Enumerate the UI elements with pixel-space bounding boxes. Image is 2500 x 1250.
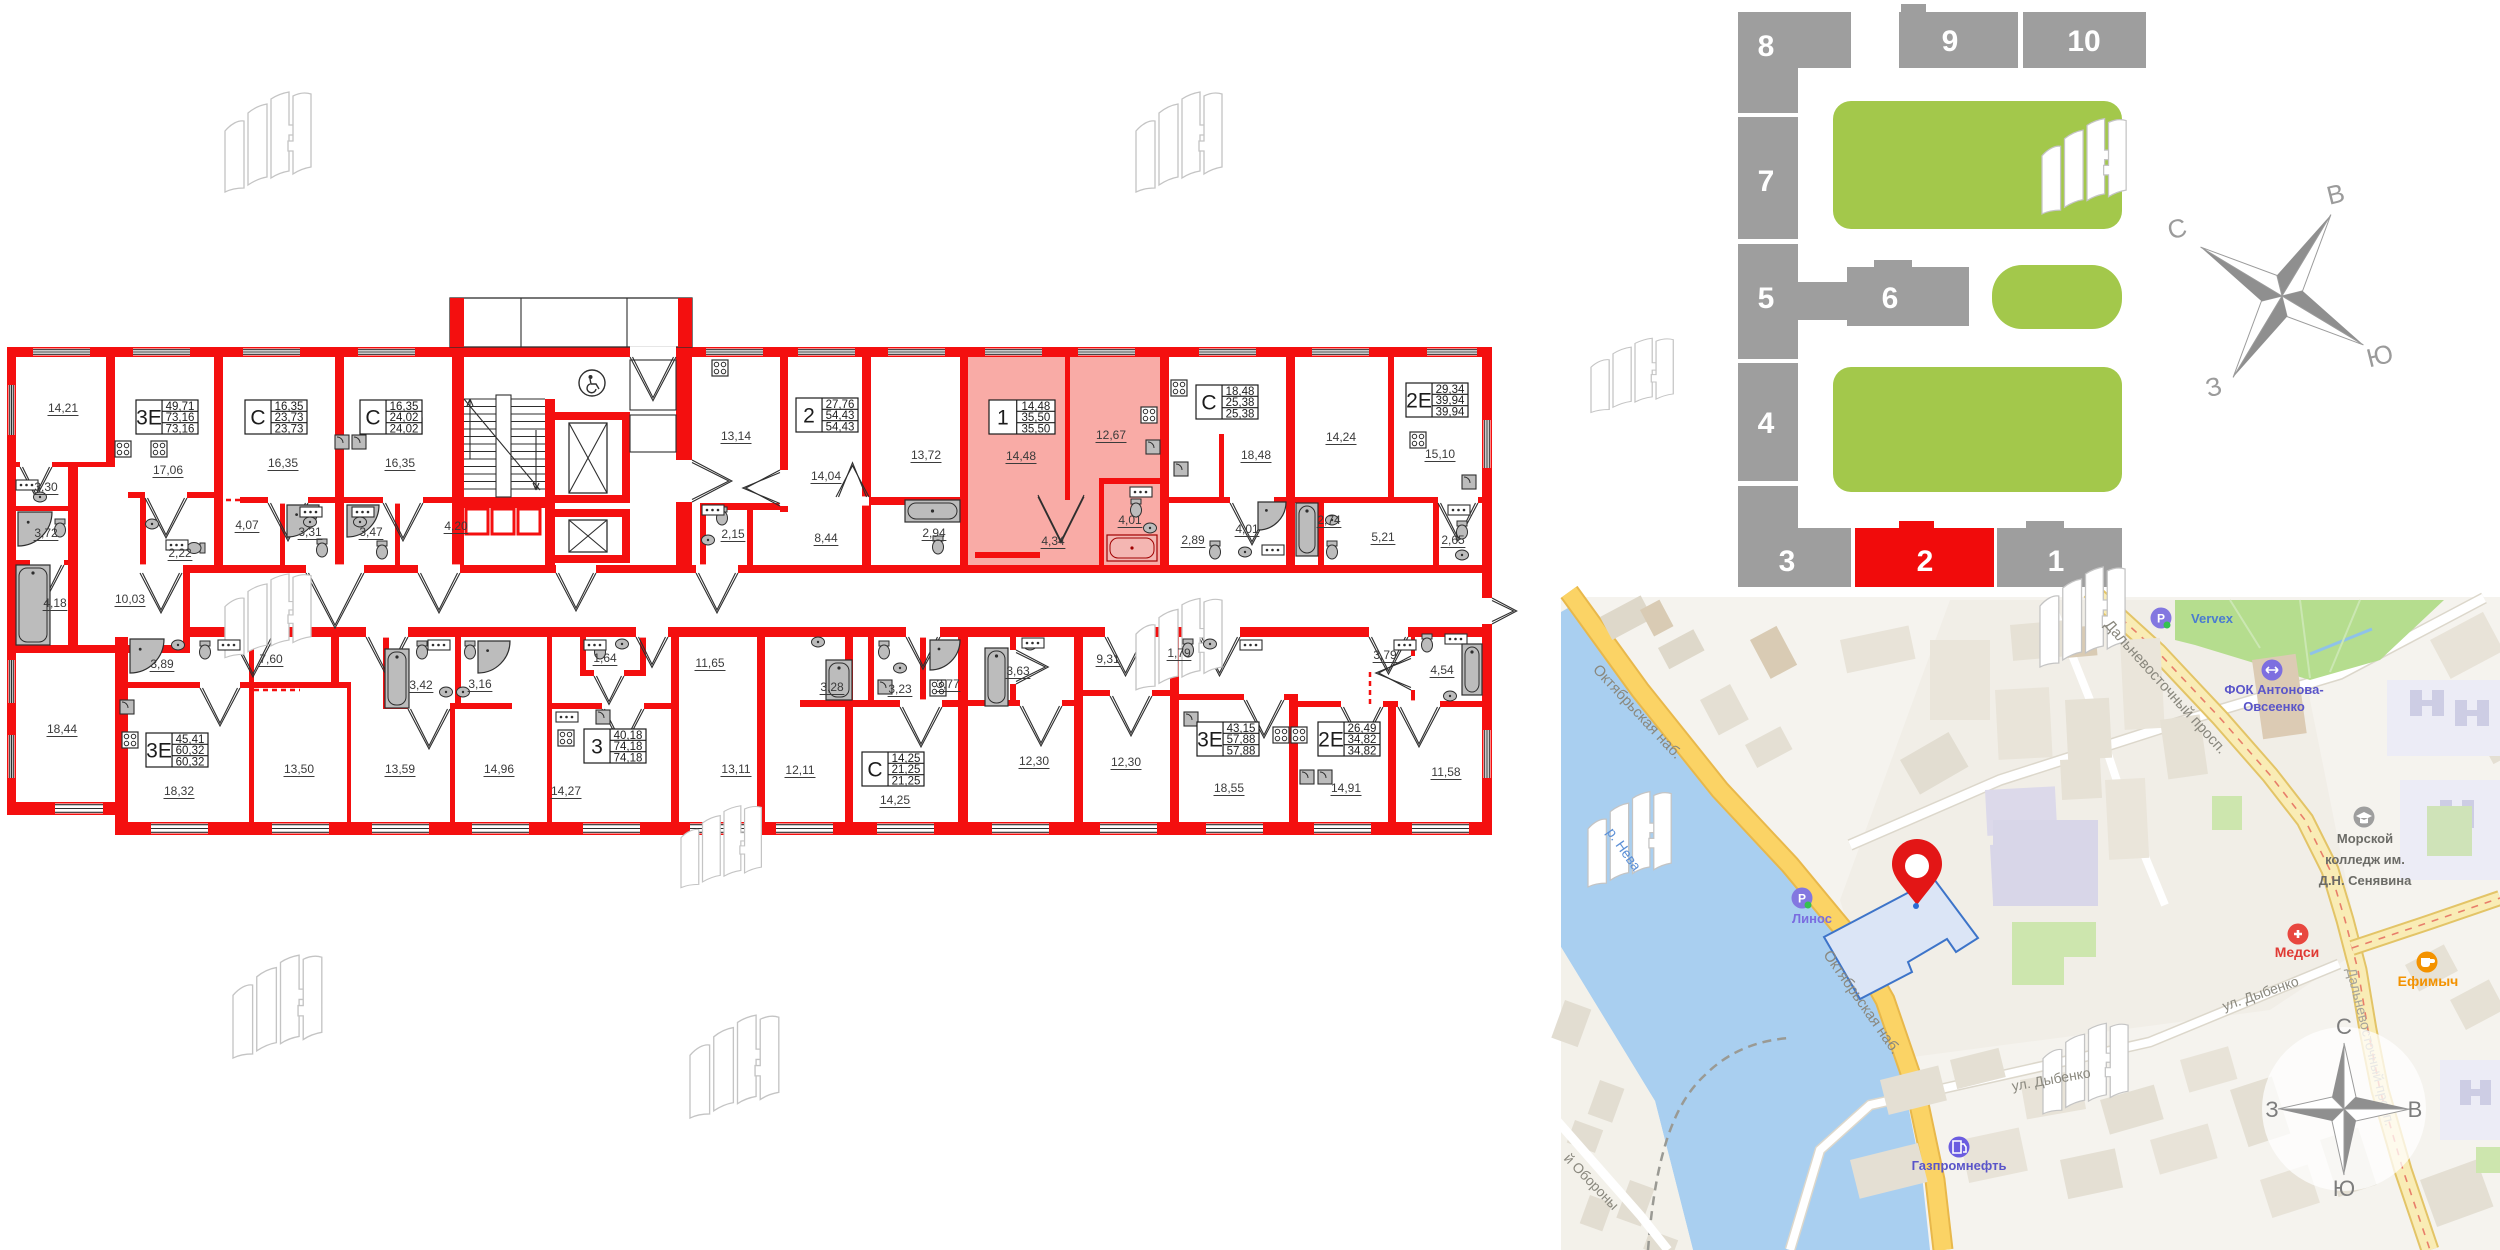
svg-text:16,35: 16,35	[275, 401, 304, 413]
svg-text:11,58: 11,58	[1431, 765, 1460, 779]
svg-text:18,48: 18,48	[1241, 448, 1271, 462]
svg-text:14,25: 14,25	[892, 753, 921, 765]
svg-text:26,49: 26,49	[1348, 723, 1377, 735]
svg-text:P: P	[1798, 892, 1806, 906]
svg-text:12,67: 12,67	[1096, 428, 1126, 442]
svg-text:2Е: 2Е	[1318, 729, 1344, 752]
svg-text:24,02: 24,02	[390, 423, 419, 435]
svg-text:2Е: 2Е	[1406, 390, 1432, 413]
svg-text:14,25: 14,25	[880, 793, 910, 807]
svg-text:Ефимыч: Ефимыч	[2398, 973, 2459, 989]
svg-text:3,23: 3,23	[888, 682, 912, 696]
svg-text:73,16: 73,16	[166, 423, 195, 435]
svg-text:13,72: 13,72	[911, 448, 941, 462]
svg-text:2,89: 2,89	[1181, 533, 1205, 547]
svg-text:14,96: 14,96	[484, 762, 514, 776]
svg-text:8,44: 8,44	[814, 531, 838, 545]
svg-text:35,50: 35,50	[1021, 423, 1050, 435]
svg-text:В: В	[2408, 1097, 2423, 1122]
svg-text:18,55: 18,55	[1214, 781, 1244, 795]
svg-text:14,27: 14,27	[551, 784, 581, 798]
svg-text:39,94: 39,94	[1436, 395, 1465, 407]
svg-text:5,21: 5,21	[1371, 530, 1395, 544]
svg-text:13,50: 13,50	[284, 762, 314, 776]
svg-text:17,06: 17,06	[153, 463, 183, 477]
svg-text:23,73: 23,73	[275, 423, 304, 435]
svg-text:35,50: 35,50	[1021, 412, 1050, 424]
svg-text:6: 6	[1882, 282, 1899, 315]
svg-text:15,10: 15,10	[1425, 447, 1455, 461]
svg-text:12,11: 12,11	[785, 763, 814, 777]
svg-text:2: 2	[803, 405, 815, 428]
svg-text:2,74: 2,74	[1317, 513, 1341, 527]
svg-text:74,18: 74,18	[614, 752, 643, 764]
svg-text:С: С	[365, 407, 380, 430]
svg-text:2,15: 2,15	[721, 527, 745, 541]
svg-text:7,60: 7,60	[259, 652, 283, 666]
svg-text:27,76: 27,76	[826, 399, 855, 411]
svg-text:4,01: 4,01	[1118, 513, 1142, 527]
svg-text:49,71: 49,71	[166, 401, 195, 413]
svg-text:10: 10	[2067, 25, 2100, 58]
svg-text:Линос: Линос	[1792, 911, 1832, 926]
svg-text:39,94: 39,94	[1436, 406, 1465, 418]
svg-text:колледж им.: колледж им.	[2325, 852, 2405, 867]
svg-text:Газпромнефть: Газпромнефть	[1912, 1158, 2007, 1173]
svg-text:16,35: 16,35	[390, 401, 419, 413]
svg-text:7: 7	[1758, 165, 1775, 198]
svg-text:3,31: 3,31	[298, 525, 322, 539]
svg-text:3,28: 3,28	[820, 680, 844, 694]
svg-text:18,32: 18,32	[164, 784, 194, 798]
svg-text:3,16: 3,16	[468, 677, 492, 691]
svg-text:3Е: 3Е	[1197, 729, 1223, 752]
svg-text:34,82: 34,82	[1348, 745, 1377, 757]
svg-text:9,31: 9,31	[1096, 652, 1120, 666]
svg-text:4,34: 4,34	[1041, 534, 1065, 548]
svg-text:3,63: 3,63	[1006, 664, 1030, 678]
svg-text:14,48: 14,48	[1006, 449, 1036, 463]
svg-text:4,54: 4,54	[1430, 663, 1454, 677]
svg-text:4,07: 4,07	[235, 518, 259, 532]
svg-text:Медси: Медси	[2275, 944, 2320, 960]
svg-text:54,43: 54,43	[826, 410, 855, 422]
svg-text:45,41: 45,41	[176, 734, 205, 746]
svg-text:Ю: Ю	[2333, 1176, 2355, 1201]
svg-text:4,01: 4,01	[1235, 522, 1259, 536]
svg-text:3,42: 3,42	[409, 678, 433, 692]
svg-text:57,88: 57,88	[1227, 745, 1256, 757]
svg-text:25,38: 25,38	[1226, 408, 1255, 420]
svg-text:29,34: 29,34	[1436, 384, 1465, 396]
svg-text:2,65: 2,65	[1441, 533, 1465, 547]
svg-text:21,25: 21,25	[892, 764, 921, 776]
svg-text:1,79: 1,79	[1167, 646, 1191, 660]
svg-text:3,89: 3,89	[150, 657, 174, 671]
svg-text:14,24: 14,24	[1326, 430, 1356, 444]
svg-text:Д.Н. Сенявина: Д.Н. Сенявина	[2319, 873, 2412, 888]
svg-text:С: С	[250, 407, 265, 430]
svg-text:60,32: 60,32	[176, 756, 205, 768]
svg-text:3,47: 3,47	[359, 525, 383, 539]
svg-text:3: 3	[1779, 545, 1796, 578]
svg-text:2,22: 2,22	[168, 546, 192, 560]
svg-text:14,21: 14,21	[48, 401, 78, 415]
svg-text:9: 9	[1942, 25, 1959, 58]
svg-text:5: 5	[1758, 282, 1775, 315]
svg-text:16,35: 16,35	[385, 456, 415, 470]
svg-text:3Е: 3Е	[146, 740, 172, 763]
svg-text:24,02: 24,02	[390, 412, 419, 424]
svg-text:4: 4	[1758, 407, 1775, 440]
svg-text:3: 3	[591, 736, 603, 759]
svg-text:3Е: 3Е	[136, 407, 162, 430]
svg-text:8: 8	[1758, 30, 1775, 63]
svg-text:P: P	[2157, 612, 2165, 626]
svg-text:ФОК Антонова-: ФОК Антонова-	[2224, 682, 2323, 697]
svg-text:13,14: 13,14	[721, 429, 751, 443]
svg-text:С: С	[1201, 392, 1216, 415]
svg-text:3,77: 3,77	[936, 677, 960, 691]
svg-text:18,48: 18,48	[1226, 386, 1255, 398]
svg-text:4,18: 4,18	[43, 596, 67, 610]
svg-text:16,35: 16,35	[268, 456, 298, 470]
svg-text:2: 2	[1917, 545, 1934, 578]
svg-text:54,43: 54,43	[826, 421, 855, 433]
svg-text:1: 1	[2048, 545, 2065, 578]
svg-text:С: С	[867, 759, 882, 782]
svg-text:13,59: 13,59	[385, 762, 415, 776]
svg-text:60,32: 60,32	[176, 745, 205, 757]
svg-text:14,91: 14,91	[1331, 781, 1361, 795]
svg-text:1,64: 1,64	[593, 651, 617, 665]
svg-text:Морской: Морской	[2337, 831, 2393, 846]
svg-text:21,25: 21,25	[892, 775, 921, 787]
svg-text:2,94: 2,94	[922, 526, 946, 540]
svg-text:43,15: 43,15	[1227, 723, 1256, 735]
svg-text:3,72: 3,72	[34, 526, 58, 540]
svg-text:34,82: 34,82	[1348, 734, 1377, 746]
svg-text:74,18: 74,18	[614, 741, 643, 753]
svg-text:Овсеенко: Овсеенко	[2243, 699, 2305, 714]
svg-text:3,79: 3,79	[1373, 648, 1397, 662]
svg-text:25,38: 25,38	[1226, 397, 1255, 409]
svg-text:12,30: 12,30	[1111, 755, 1141, 769]
svg-text:18,44: 18,44	[47, 722, 77, 736]
svg-text:С: С	[2336, 1014, 2352, 1039]
svg-text:23,73: 23,73	[275, 412, 304, 424]
svg-text:11,65: 11,65	[695, 656, 724, 670]
svg-text:13,11: 13,11	[721, 762, 750, 776]
svg-text:40,18: 40,18	[614, 730, 643, 742]
svg-text:14,48: 14,48	[1021, 401, 1050, 413]
svg-text:Vervex: Vervex	[2191, 611, 2234, 626]
svg-text:73,16: 73,16	[166, 412, 195, 424]
svg-text:14,04: 14,04	[811, 469, 841, 483]
svg-text:4,20: 4,20	[444, 519, 468, 533]
svg-text:З: З	[2265, 1097, 2278, 1122]
svg-text:3,30: 3,30	[34, 480, 58, 494]
svg-text:10,03: 10,03	[115, 592, 145, 606]
svg-text:12,30: 12,30	[1019, 754, 1049, 768]
svg-text:1: 1	[997, 407, 1009, 430]
svg-text:57,88: 57,88	[1227, 734, 1256, 746]
